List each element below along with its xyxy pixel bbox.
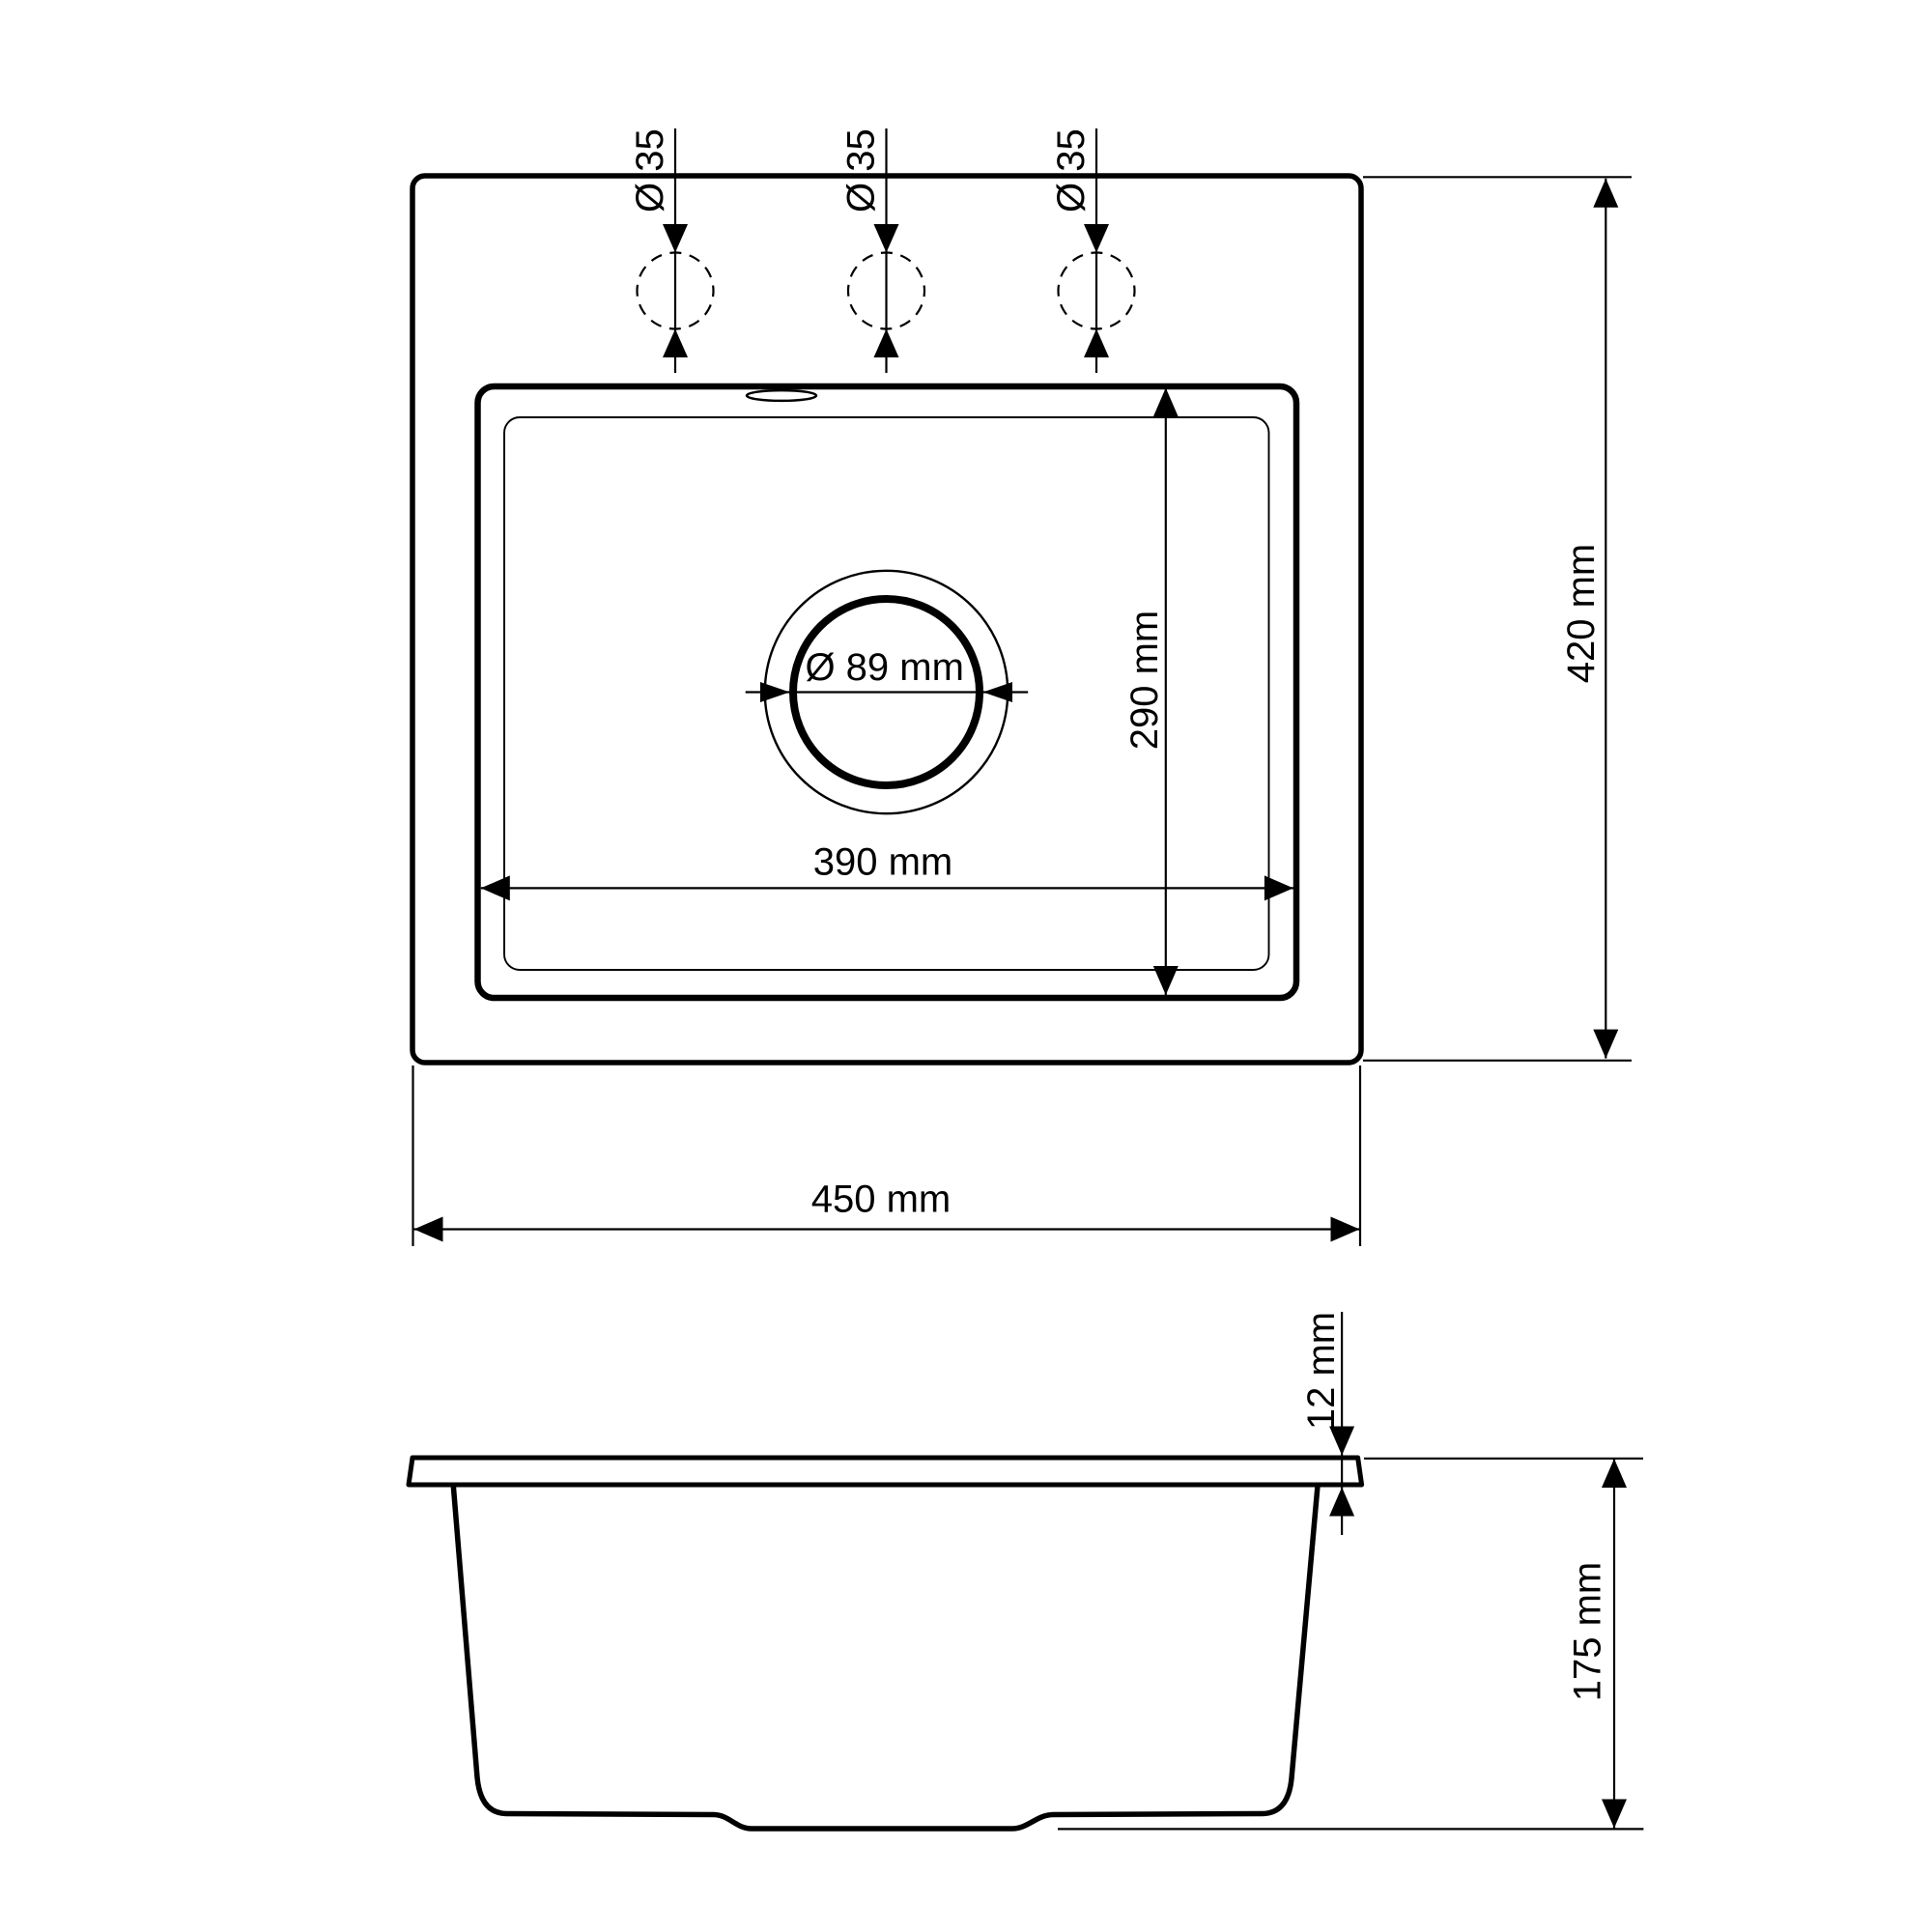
svg-text:Ø 35: Ø 35	[840, 128, 883, 213]
svg-text:290 mm: 290 mm	[1123, 611, 1166, 751]
svg-text:Ø 89 mm: Ø 89 mm	[805, 646, 963, 689]
svg-text:175 mm: 175 mm	[1567, 1562, 1609, 1702]
svg-text:390 mm: 390 mm	[813, 841, 953, 884]
svg-text:450 mm: 450 mm	[811, 1179, 952, 1221]
svg-text:Ø 35: Ø 35	[1050, 128, 1093, 213]
svg-text:12 mm: 12 mm	[1300, 1312, 1343, 1430]
svg-text:Ø 35: Ø 35	[629, 128, 671, 213]
svg-text:420 mm: 420 mm	[1560, 544, 1603, 684]
